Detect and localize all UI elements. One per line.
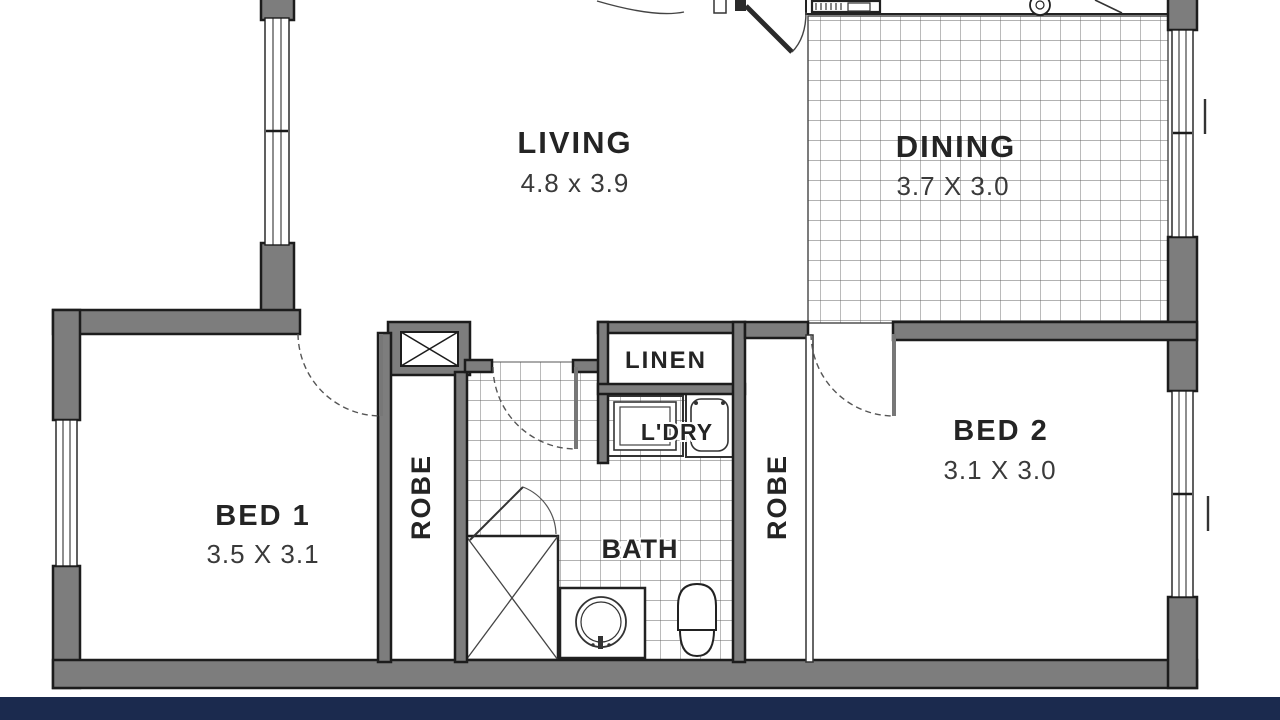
wall-living-left-bottom — [261, 243, 294, 319]
cooktop-icon — [1030, 0, 1050, 15]
robe-cabinet-icon — [388, 322, 470, 375]
wall-right-mid — [1168, 237, 1197, 391]
wall-entry-post — [735, 0, 746, 11]
living-label: LIVING — [517, 125, 632, 160]
window-bed2-right — [1172, 391, 1193, 597]
tile-floor-dining — [808, 16, 1168, 323]
kitchen-sink-icon — [812, 1, 880, 12]
wall-right-top — [1168, 0, 1197, 30]
wall-bed1-top — [53, 310, 300, 334]
wall-entry-stub — [714, 0, 726, 13]
wall-bath-right — [733, 322, 745, 662]
wall-living-left-top — [261, 0, 294, 20]
window-dining-right — [1172, 30, 1193, 237]
laundry-label: L'DRY — [641, 419, 713, 445]
wall-bed2-top — [893, 322, 1197, 340]
window-bed1-left — [56, 420, 77, 566]
wall-robe1-right — [455, 372, 467, 662]
bed1-dims: 3.5 X 3.1 — [206, 539, 319, 569]
wall-bed1-left-upper — [53, 310, 80, 420]
floor-plan-page: LIVING 4.8 x 3.9 DINING 3.7 X 3.0 BED 1 … — [0, 0, 1280, 720]
wall-bath-top-left — [465, 360, 492, 372]
footer-bar — [0, 697, 1280, 720]
linen-label: LINEN — [625, 347, 707, 374]
vanity-basin-icon — [560, 588, 645, 658]
window-living-left — [265, 18, 289, 245]
wall-linen-bottom — [598, 384, 745, 394]
wall-bottom — [53, 660, 1197, 688]
wall-robe2-divider — [806, 335, 813, 662]
robe2-label: ROBE — [762, 454, 792, 540]
robe1-label: ROBE — [406, 454, 436, 540]
wall-robe2-top — [745, 322, 808, 338]
bed2-label: BED 2 — [953, 415, 1048, 447]
wall-linen-top — [598, 322, 745, 333]
dining-label: DINING — [896, 129, 1017, 164]
wall-right-bottom — [1168, 597, 1197, 688]
toilet-icon — [678, 584, 716, 656]
floor-plan-drawing: LIVING 4.8 x 3.9 DINING 3.7 X 3.0 BED 1 … — [0, 0, 1280, 697]
dining-dims: 3.7 X 3.0 — [896, 171, 1009, 201]
bath-label: BATH — [602, 534, 679, 564]
bed1-label: BED 1 — [215, 500, 310, 532]
living-dims: 4.8 x 3.9 — [521, 168, 630, 198]
bed2-dims: 3.1 X 3.0 — [943, 455, 1056, 485]
